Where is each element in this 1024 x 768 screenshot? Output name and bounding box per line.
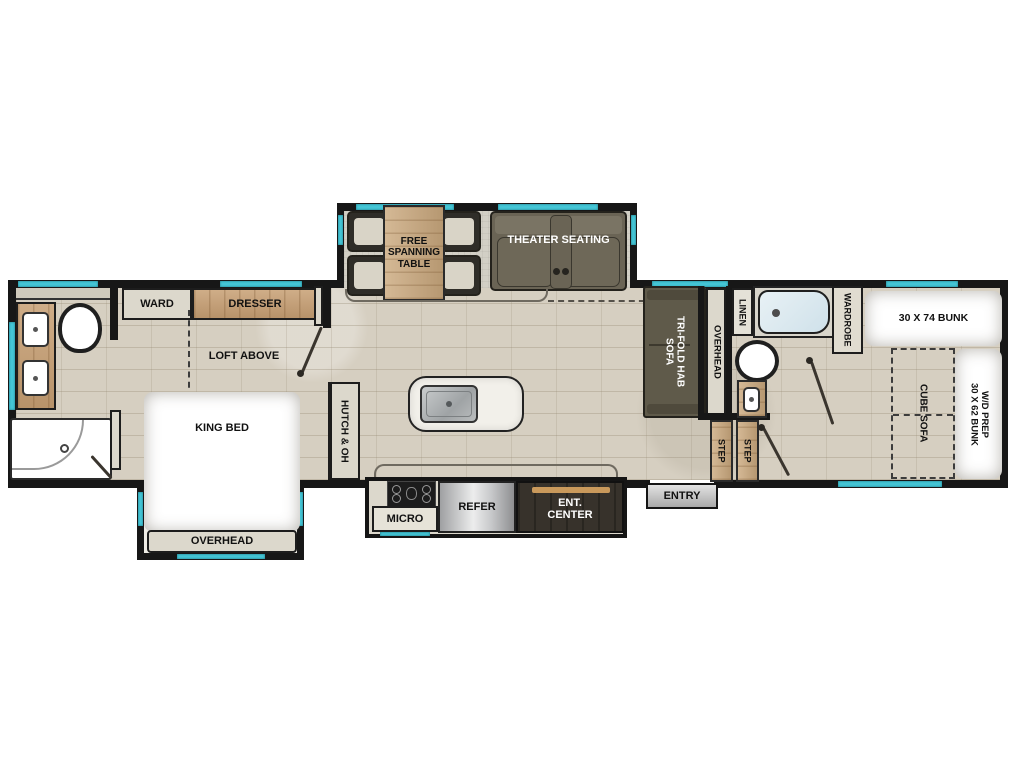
king-bed bbox=[144, 392, 300, 532]
wd-prep-bunk-label: W/D PREP 30 X 62 BUNK bbox=[955, 349, 1002, 479]
window bbox=[18, 281, 98, 287]
bunk-30x74-label: 30 X 74 BUNK bbox=[865, 291, 1002, 346]
slide-boundary-line bbox=[345, 289, 548, 302]
dresser-label: DRESSER bbox=[192, 288, 318, 320]
linen-label: LINEN bbox=[732, 288, 753, 336]
ent-center-label: ENT. CENTER bbox=[516, 489, 624, 529]
window bbox=[177, 554, 265, 559]
cube-sofa-label: CUBE SOFA bbox=[891, 348, 955, 479]
shower-jamb bbox=[110, 410, 121, 470]
bath-wall-band bbox=[16, 288, 112, 300]
hutch-label: HUTCH & OH bbox=[328, 382, 360, 480]
shower bbox=[10, 418, 112, 480]
window bbox=[138, 492, 143, 526]
window bbox=[9, 322, 15, 410]
window bbox=[380, 532, 430, 536]
bottom-wall-front bbox=[8, 480, 140, 488]
door-hardware bbox=[297, 370, 304, 377]
step-label: STEP bbox=[736, 420, 759, 482]
bathtub bbox=[758, 290, 830, 334]
window bbox=[886, 281, 958, 287]
theater-seating bbox=[490, 211, 627, 291]
loft-above-label: LOFT ABOVE bbox=[193, 348, 295, 364]
step-label: STEP bbox=[710, 420, 733, 482]
vanity-sink bbox=[22, 360, 49, 396]
door-jamb bbox=[314, 286, 323, 326]
toilet bbox=[58, 303, 102, 353]
window bbox=[220, 281, 302, 287]
free-spanning-table-label: FREE SPANNING TABLE bbox=[383, 205, 445, 301]
micro-label: MICRO bbox=[372, 506, 438, 532]
door-hardware bbox=[806, 357, 813, 364]
trifold-sofa-label: TRI-FOLD HAB SOFA bbox=[643, 286, 706, 418]
king-bed-label: KING BED bbox=[168, 420, 276, 436]
window bbox=[631, 215, 636, 245]
rear-sink-cabinet bbox=[737, 380, 767, 418]
rv-floorplan: FREE SPANNING TABLE THEATER SEATING WARD bbox=[0, 0, 1024, 768]
window bbox=[838, 481, 942, 487]
rear-bath-left-wall bbox=[698, 286, 704, 420]
range-stove bbox=[387, 481, 436, 507]
door-hardware bbox=[758, 424, 765, 431]
theater-seating-label: THEATER SEATING bbox=[492, 230, 625, 250]
bath-divider-wall bbox=[110, 288, 118, 340]
bed-overhead-label: OVERHEAD bbox=[147, 530, 297, 553]
vanity-sink bbox=[22, 312, 49, 347]
wardrobe-label: WARDROBE bbox=[832, 286, 863, 354]
refer-label: REFER bbox=[438, 481, 516, 533]
entry-label: ENTRY bbox=[646, 483, 718, 509]
island-sink bbox=[420, 385, 478, 423]
wall-stub bbox=[323, 286, 331, 328]
rear-toilet bbox=[735, 340, 779, 382]
rear-overhead-label: OVERHEAD bbox=[706, 288, 726, 416]
bottom-wall-mid bbox=[300, 480, 368, 488]
ward-label: WARD bbox=[122, 288, 192, 320]
window bbox=[338, 215, 343, 245]
window bbox=[498, 204, 598, 210]
slide-boundary-dashed bbox=[548, 300, 655, 302]
